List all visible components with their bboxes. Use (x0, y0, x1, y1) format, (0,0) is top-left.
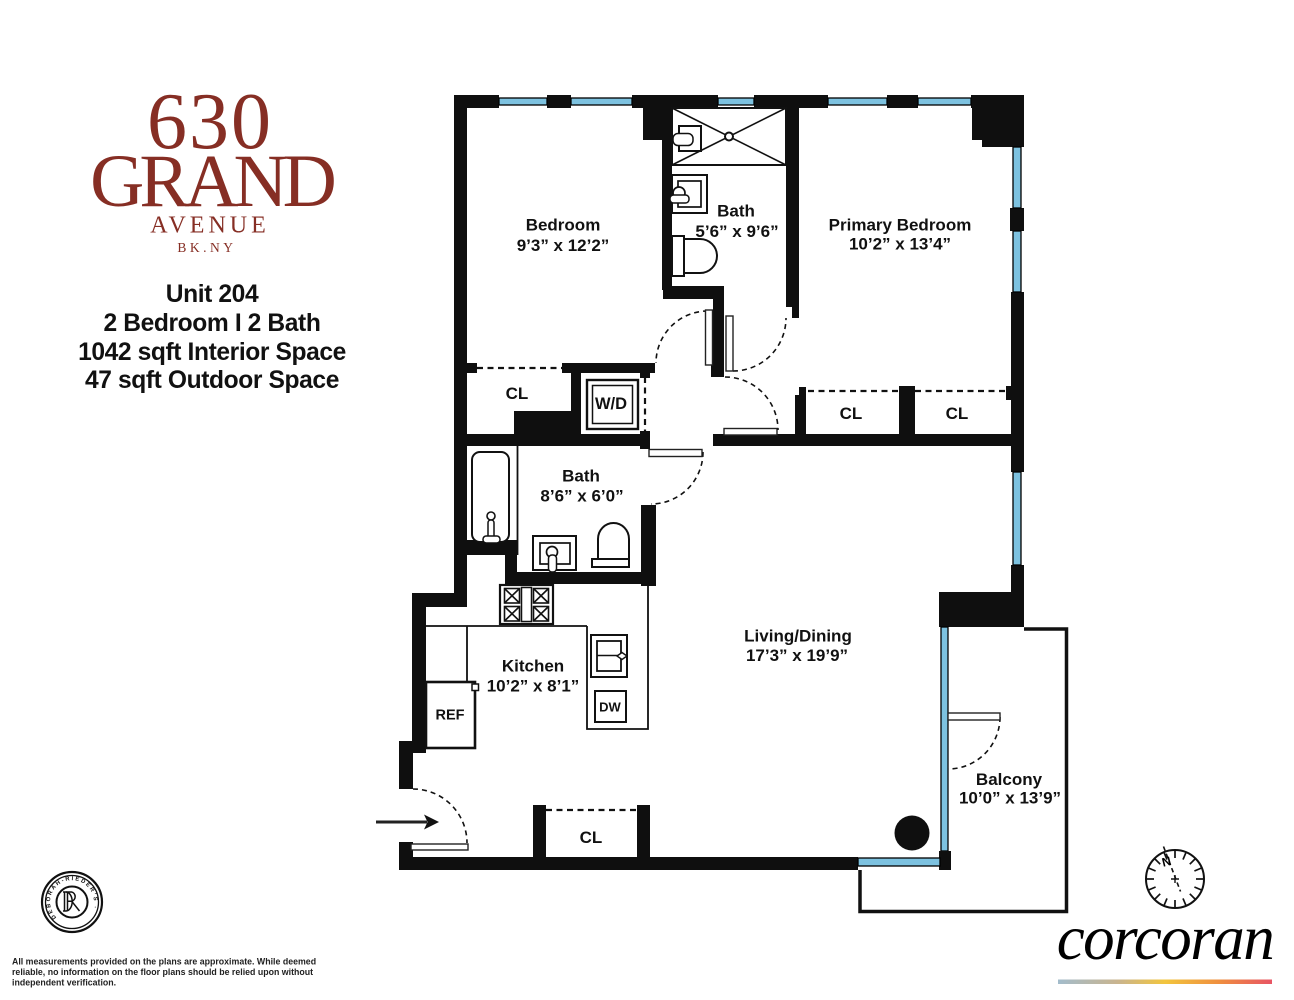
svg-text:CL: CL (506, 384, 529, 403)
svg-text:Unit 204: Unit 204 (166, 281, 259, 308)
svg-text:8’6” x 6’0”: 8’6” x 6’0” (540, 487, 623, 506)
svg-text:10’2” x 8’1”: 10’2” x 8’1” (487, 677, 580, 696)
svg-text:9’3” x 12’2”: 9’3” x 12’2” (517, 236, 610, 255)
svg-text:Bath: Bath (562, 467, 600, 486)
svg-text:All measurements provided on t: All measurements provided on the plans a… (12, 957, 316, 967)
svg-text:N: N (1160, 854, 1172, 870)
svg-text:CL: CL (580, 828, 603, 847)
svg-text:CL: CL (840, 404, 863, 423)
svg-text:2 Bedroom I 2 Bath: 2 Bedroom I 2 Bath (104, 310, 321, 337)
svg-text:47 sqft Outdoor Space: 47 sqft Outdoor Space (85, 367, 339, 394)
svg-text:Bath: Bath (717, 202, 755, 221)
svg-text:Primary Bedroom: Primary Bedroom (829, 216, 972, 235)
svg-text:Balcony: Balcony (976, 770, 1043, 789)
svg-text:corcoran: corcoran (1057, 903, 1274, 973)
svg-text:17’3” x 19’9”: 17’3” x 19’9” (746, 646, 848, 665)
svg-text:BK.NY: BK.NY (177, 240, 236, 255)
svg-text:Living/Dining: Living/Dining (744, 627, 852, 646)
svg-text:Kitchen: Kitchen (502, 657, 564, 676)
svg-text:independent verification.: independent verification. (12, 978, 116, 988)
svg-text:5’6” x 9’6”: 5’6” x 9’6” (695, 222, 778, 241)
svg-text:10’0” x 13’9”: 10’0” x 13’9” (959, 789, 1061, 808)
svg-text:10’2” x 13’4”: 10’2” x 13’4” (849, 235, 951, 254)
svg-text:AVENUE: AVENUE (150, 213, 270, 239)
svg-text:reliable, no information on th: reliable, no information on the floor pl… (12, 967, 313, 977)
svg-text:GRAND: GRAND (90, 140, 335, 223)
svg-text:1042 sqft Interior Space: 1042 sqft Interior Space (78, 339, 346, 366)
svg-text:W/D: W/D (595, 395, 627, 413)
svg-text:CL: CL (946, 404, 969, 423)
svg-text:REF: REF (436, 708, 465, 724)
svg-text:DW: DW (599, 700, 621, 715)
svg-text:Bedroom: Bedroom (526, 216, 601, 235)
